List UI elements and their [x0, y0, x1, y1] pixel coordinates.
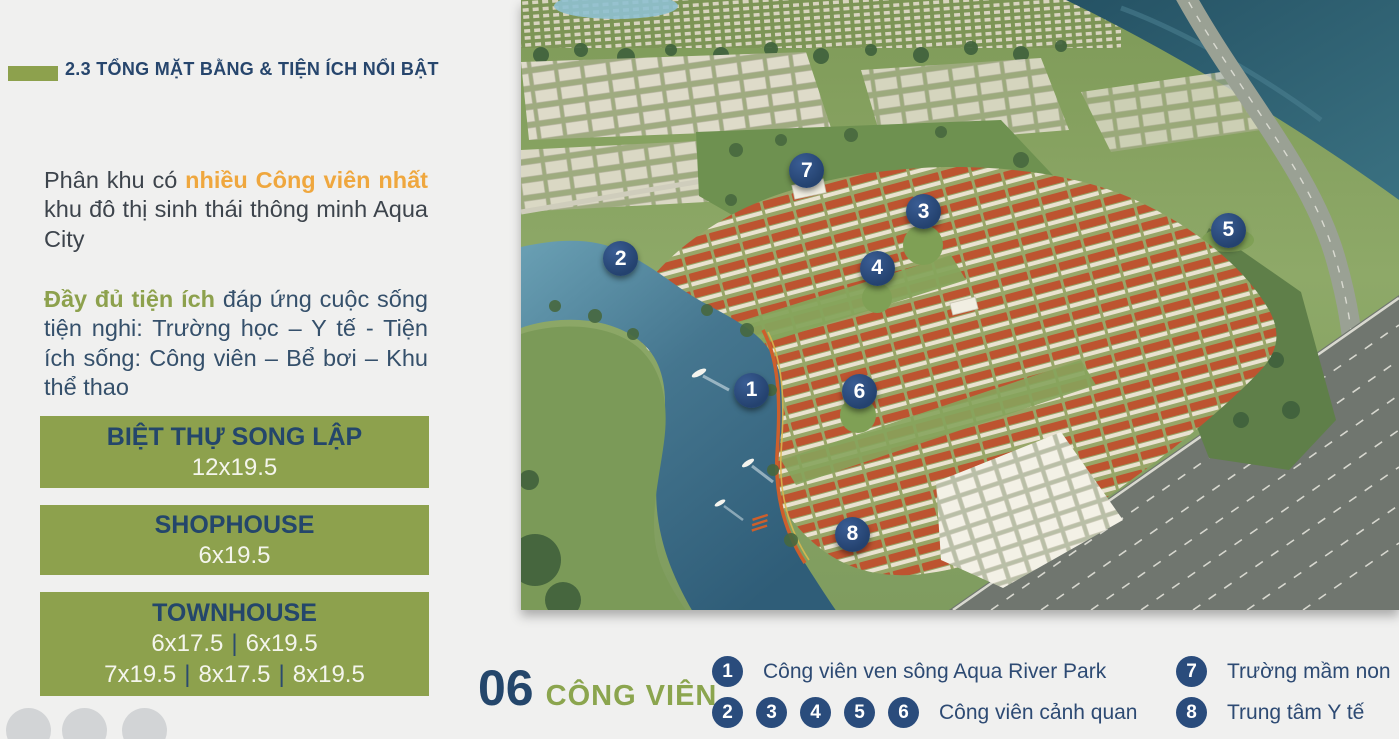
product-title: BIỆT THỰ SONG LẬP [107, 422, 362, 452]
legend-marker-badge-5: 5 [844, 697, 875, 728]
legend-label: Trường mầm non [1227, 660, 1391, 684]
heading-accent-bar [8, 66, 58, 81]
intro-p1-highlight: nhiều Công viên nhất [185, 167, 428, 193]
product-sizes-line: 6x19.5 [198, 540, 270, 571]
product-sizes-line: 7x19.5|8x17.5|8x19.5 [104, 659, 365, 690]
size-separator: | [223, 630, 245, 657]
product-size-value: 6x19.5 [246, 630, 318, 657]
intro-p2-highlight: Đầy đủ tiện ích [44, 286, 215, 312]
parks-count-number: 06 [478, 663, 534, 713]
map-marker-3: 3 [906, 194, 941, 229]
legend-marker-badge-4: 4 [800, 697, 831, 728]
intro-p1-post: khu đô thị sinh thái thông minh Aqua Cit… [44, 196, 428, 252]
intro-p1-pre: Phân khu có [44, 167, 185, 193]
legend-marker-badge-7: 7 [1176, 656, 1207, 687]
legend-marker-badge-2: 2 [712, 697, 743, 728]
product-box: TOWNHOUSE6x17.5|6x19.57x19.5|8x17.5|8x19… [40, 592, 429, 696]
legend-row: 8Trung tâm Y tế [1176, 697, 1391, 728]
product-sizes-line: 12x19.5 [192, 452, 277, 483]
slide-heading: 2.3 TỔNG MẶT BẰNG & TIỆN ÍCH NỔI BẬT [65, 59, 439, 80]
legend-marker-badge-8: 8 [1176, 697, 1207, 728]
size-separator: | [176, 661, 198, 688]
pager-dot [6, 708, 51, 739]
map-marker-8: 8 [835, 517, 870, 552]
product-size-value: 6x17.5 [151, 630, 223, 657]
legend-marker-badge-1: 1 [712, 656, 743, 687]
product-title: SHOPHOUSE [155, 510, 315, 540]
map-marker-2: 2 [603, 241, 638, 276]
size-separator: | [271, 661, 293, 688]
map-marker-1: 1 [734, 373, 769, 408]
legend-row: 7Trường mầm non [1176, 656, 1391, 687]
legend-marker-badge-6: 6 [888, 697, 919, 728]
intro-paragraph-parks: Phân khu có nhiều Công viên nhất khu đô … [44, 166, 428, 255]
product-box: SHOPHOUSE6x19.5 [40, 505, 429, 575]
map-marker-5: 5 [1211, 213, 1246, 248]
legend-right-column: 7Trường mầm non8Trung tâm Y tế [1176, 656, 1391, 728]
pager-dot [122, 708, 167, 739]
parks-counter: 06 CÔNG VIÊN [478, 663, 717, 713]
parks-count-label: CÔNG VIÊN [546, 680, 718, 713]
legend-label: Công viên cảnh quan [939, 701, 1138, 725]
intro-paragraph-amenities: Đầy đủ tiện ích đáp ứng cuộc sống tiện n… [44, 285, 428, 403]
pager-dot [62, 708, 107, 739]
map-marker-4: 4 [860, 251, 895, 286]
legend-row: 1Công viên ven sông Aqua River Park [712, 656, 1138, 687]
masterplan-art [521, 0, 1399, 610]
legend-marker-badge-3: 3 [756, 697, 787, 728]
legend-left-column: 1Công viên ven sông Aqua River Park23456… [712, 656, 1138, 728]
product-size-value: 8x17.5 [198, 661, 270, 688]
product-title: TOWNHOUSE [152, 598, 317, 628]
product-sizes-line: 6x17.5|6x19.5 [151, 628, 317, 659]
legend-row: 23456Công viên cảnh quan [712, 697, 1138, 728]
legend-label: Trung tâm Y tế [1227, 701, 1364, 725]
product-size-value: 12x19.5 [192, 454, 277, 481]
product-size-value: 7x19.5 [104, 661, 176, 688]
presentation-slide: 2.3 TỔNG MẶT BẰNG & TIỆN ÍCH NỔI BẬT Phâ… [0, 0, 1399, 739]
product-size-value: 8x19.5 [293, 661, 365, 688]
product-size-value: 6x19.5 [198, 542, 270, 569]
legend-label: Công viên ven sông Aqua River Park [763, 660, 1106, 684]
masterplan-aerial-render: 12345678 [521, 0, 1399, 610]
map-marker-6: 6 [842, 374, 877, 409]
product-box: BIỆT THỰ SONG LẬP12x19.5 [40, 416, 429, 488]
